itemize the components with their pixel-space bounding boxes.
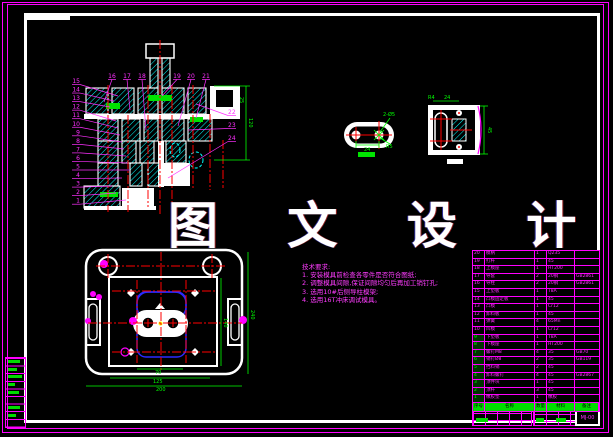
bom-row: 6销钉Ø8235GB119	[473, 356, 599, 364]
part1-dim-holes: 2-Ø5	[383, 111, 395, 118]
bom-row: 8下模座1HT200	[473, 341, 599, 349]
tech-requirements: 技术要求: 1. 安装模具前检查各零件是否符合图纸; 2. 调整模具间隙,保证间…	[302, 263, 467, 304]
callout-number: 3	[76, 181, 80, 188]
part1-dim-radius: R5	[386, 144, 393, 150]
callout-number: 7	[76, 146, 80, 153]
callout-number: 22	[228, 109, 236, 116]
callout-number: 14	[72, 87, 80, 94]
bom-row: 9下垫板1T8A	[473, 334, 599, 342]
callout-number: 21	[202, 73, 210, 80]
part2-dim-width: 24	[444, 95, 450, 101]
part2-dim-height: 45	[486, 127, 492, 133]
part1-name-bar	[358, 152, 375, 157]
bom-row: 12卸料板145	[473, 311, 599, 319]
bom-row: 16导柱220钢GB2861	[473, 280, 599, 288]
bom-row: 18上模座1HT200	[473, 265, 599, 273]
callout-number: 1	[76, 198, 80, 205]
callout-number: 4	[76, 172, 80, 179]
bom-row: 4卸料螺钉445GB2867	[473, 372, 599, 380]
bom-row: 10凹模1Cr12	[473, 326, 599, 334]
tech-requirement-item: 3. 选用10#后侧导柱模架;	[302, 288, 467, 296]
part2-dim-radius: R4	[428, 95, 435, 101]
plan-dim-right-inner: 140	[222, 318, 228, 328]
callout-number: 2	[76, 189, 80, 196]
plan-dim-bottom-inner: 70	[155, 370, 161, 376]
bom-header-qty: 数量	[535, 403, 547, 411]
part-view-obround: 2-Ø5 R5 24	[344, 111, 395, 157]
callout-number: 13	[72, 95, 80, 102]
callout-number: 20	[187, 73, 195, 80]
callout-number: 6	[76, 155, 80, 162]
bom-row: 7螺钉M8435GB70	[473, 349, 599, 357]
callout-number: 10	[72, 121, 80, 128]
bom-row: 14凸模固定板145	[473, 296, 599, 304]
watermark-text: 图 文 设 计	[168, 186, 478, 258]
bom-header-row: 序号 名称 数量 材料 备注	[473, 402, 599, 411]
callout-number: 19	[173, 73, 181, 80]
callout-number: 16	[108, 73, 116, 80]
bom-row: 3顶件块145	[473, 379, 599, 387]
bom-header-name: 名称	[485, 403, 535, 411]
drawing-number: MJ-00	[581, 415, 595, 421]
bom-row: 15上垫板1T8A	[473, 288, 599, 296]
callout-number: 18	[138, 73, 146, 80]
callout-number: 17	[123, 73, 131, 80]
bom-row: 1橡胶垫1橡胶	[473, 394, 599, 402]
callout-number: 12	[72, 104, 80, 111]
bom-row: 19打杆145	[473, 258, 599, 266]
callout-number: 23	[228, 122, 236, 129]
tech-requirement-item: 4. 选用16T冲床调试模具。	[302, 296, 467, 304]
bom-rows: 20模柄1Q23519打杆14518上模座1HT20017导套220钢GB286…	[473, 251, 599, 402]
bom-row: 5挡料销245	[473, 364, 599, 372]
callout-number: 5	[76, 164, 80, 171]
plan-dim-bottom-mid: 125	[153, 379, 163, 385]
callout-number: 11	[72, 112, 80, 119]
title-block-drawing-no-box: MJ-00	[575, 410, 600, 426]
tech-requirement-item: 2. 调整模具间隙,保证间隙均匀后再加工销钉孔;	[302, 279, 467, 287]
callout-number: 24	[228, 135, 236, 142]
bom-row: 13凸模1Cr12	[473, 303, 599, 311]
plan-dim-right-outer: 240	[249, 310, 255, 320]
cad-drawing-canvas: 120 25 151413121110987654321161718192021…	[0, 0, 613, 437]
callout-number: 8	[76, 138, 80, 145]
section-dim-small: 25	[238, 97, 244, 103]
bom-row: 2顶杆345	[473, 387, 599, 395]
bom-table: 20模柄1Q23519打杆14518上模座1HT20017导套220钢GB286…	[472, 250, 600, 412]
bom-row: 17导套220钢GB2861	[473, 273, 599, 281]
bom-header-material: 材料	[547, 403, 575, 411]
part-view-die: R4 24 45	[428, 95, 492, 164]
bom-header-remark: 备注	[575, 403, 599, 411]
bom-row: 11弹簧465Mn	[473, 318, 599, 326]
callout-number: 15	[72, 78, 80, 85]
bom-header-no: 序号	[473, 403, 485, 411]
section-dim-right: 120	[247, 118, 253, 128]
plan-dim-bottom-outer: 200	[156, 387, 166, 393]
plan-view: 140 240 70 125 200	[85, 250, 255, 393]
tech-requirements-title: 技术要求:	[302, 263, 467, 271]
part2-name-bar	[447, 159, 463, 164]
callout-number: 9	[76, 129, 80, 136]
